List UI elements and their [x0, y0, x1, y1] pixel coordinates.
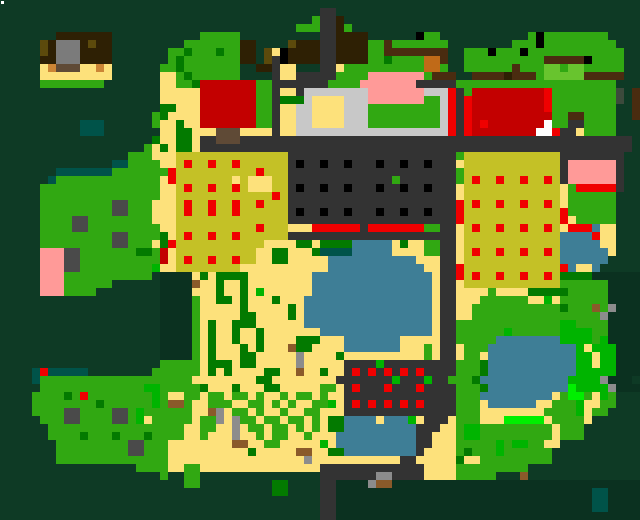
game-world-map	[0, 0, 640, 520]
world-map-canvas[interactable]	[0, 0, 640, 520]
map-cursor-dot	[1, 1, 4, 4]
